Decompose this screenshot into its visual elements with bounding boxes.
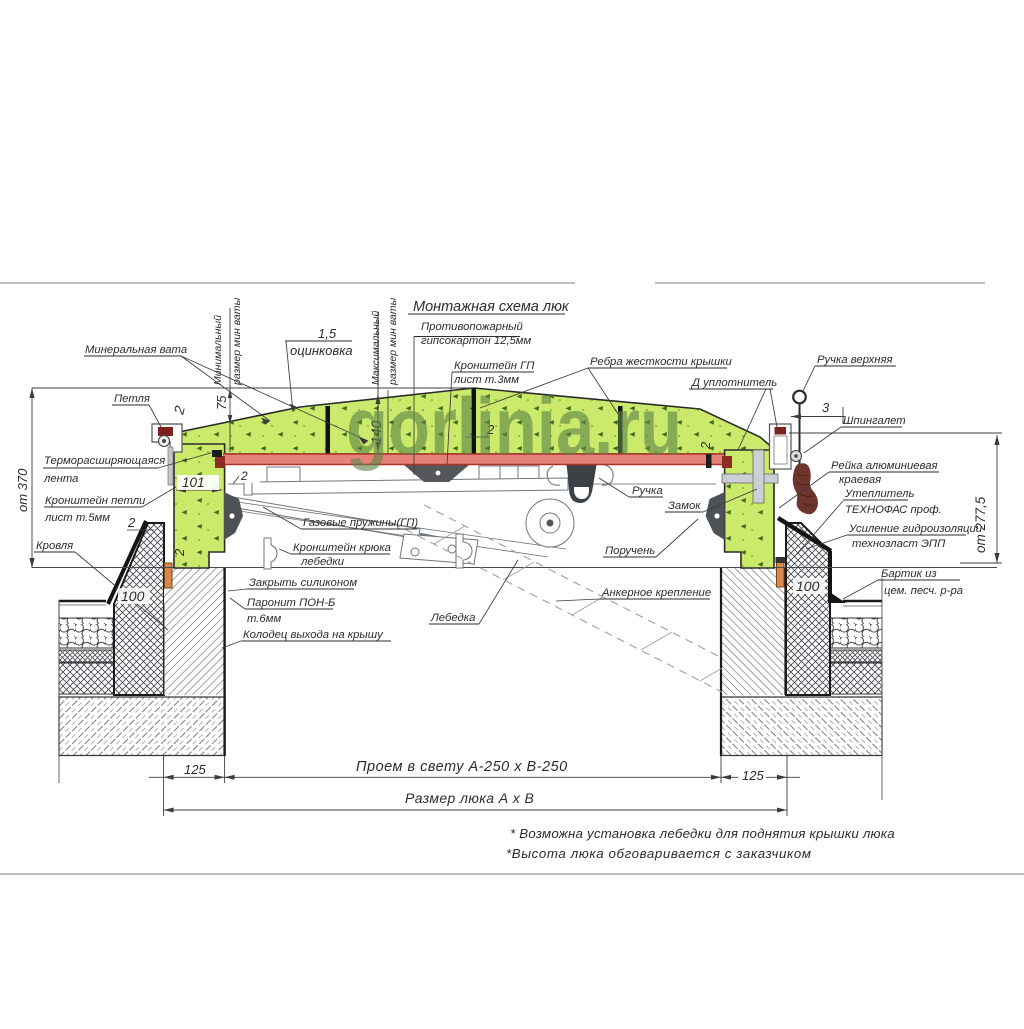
svg-text:Противопожарный: Противопожарный: [421, 321, 523, 333]
svg-text:т.6мм: т.6мм: [247, 613, 281, 625]
svg-text:2: 2: [240, 469, 248, 483]
svg-text:Паронит ПОН-Б: Паронит ПОН-Б: [247, 597, 335, 609]
svg-text:101: 101: [182, 475, 205, 490]
svg-text:Газовые пружины(ГП): Газовые пружины(ГП): [303, 517, 418, 529]
svg-text:Усиление гидроизоляции: Усиление гидроизоляции: [848, 523, 983, 535]
svg-text:Рейка алюминиевая: Рейка алюминиевая: [831, 460, 938, 472]
svg-text:гипсокартон 12,5мм: гипсокартон 12,5мм: [421, 335, 532, 347]
svg-text:цем. песч. р-ра: цем. песч. р-ра: [884, 585, 963, 597]
svg-text:Минимальный: Минимальный: [212, 315, 224, 385]
svg-text:3: 3: [822, 400, 830, 415]
svg-text:Размер люка А х В: Размер люка А х В: [405, 790, 534, 806]
svg-text:125: 125: [742, 768, 764, 783]
svg-text:Анкерное крепление: Анкерное крепление: [601, 587, 711, 599]
svg-text:Замок: Замок: [668, 500, 701, 512]
svg-text:Лебедка: Лебедка: [430, 612, 475, 624]
svg-text:2: 2: [127, 515, 136, 530]
svg-text:* Возможна установка лебедки д: * Возможна установка лебедки для подняти…: [510, 826, 895, 841]
svg-text:75: 75: [214, 395, 229, 410]
svg-text:Ручка верхняя: Ручка верхняя: [817, 354, 893, 366]
svg-text:Поручень: Поручень: [605, 545, 655, 557]
svg-text:от 277,5: от 277,5: [973, 496, 988, 553]
svg-text:лист т.5мм: лист т.5мм: [44, 512, 110, 524]
svg-text:оцинковка: оцинковка: [290, 343, 353, 358]
svg-text:Кронштейн ГП: Кронштейн ГП: [454, 360, 535, 372]
svg-text:2: 2: [172, 548, 187, 557]
svg-text:технозласт ЭПП: технозласт ЭПП: [852, 538, 946, 550]
svg-text:лебедки: лебедки: [300, 556, 345, 568]
svg-text:Максимальный: Максимальный: [370, 310, 382, 385]
svg-text:Д уплотнитель: Д уплотнитель: [690, 377, 777, 389]
svg-text:Терморасширяющаяся: Терморасширяющаяся: [44, 455, 165, 467]
svg-text:Шпингалет: Шпингалет: [843, 415, 906, 427]
svg-text:Ручка: Ручка: [632, 485, 663, 497]
svg-text:*Высота люка обговаривается с: *Высота люка обговаривается с заказчиком: [506, 846, 812, 861]
svg-text:Кронштейн петли: Кронштейн петли: [45, 495, 146, 507]
svg-text:Кровля: Кровля: [36, 540, 73, 552]
svg-text:gorlinia.ru: gorlinia.ru: [346, 382, 682, 472]
svg-text:размер мин ваты: размер мин ваты: [387, 297, 399, 386]
svg-text:Проем в свету А-250 х В-250: Проем в свету А-250 х В-250: [356, 759, 568, 775]
svg-text:Колодец выхода на крышу: Колодец выхода на крышу: [243, 629, 384, 641]
svg-text:Закрыть силиконом: Закрыть силиконом: [249, 577, 357, 589]
svg-text:Монтажная схема люк: Монтажная схема люк: [413, 299, 570, 315]
svg-text:1,5: 1,5: [318, 326, 337, 341]
svg-text:100: 100: [121, 588, 145, 604]
svg-text:от 370: от 370: [15, 468, 30, 512]
svg-text:краевая: краевая: [839, 474, 881, 486]
svg-text:ТЕХНОФАС проф.: ТЕХНОФАС проф.: [845, 504, 942, 516]
svg-text:Утеплитель: Утеплитель: [844, 488, 914, 500]
svg-text:125: 125: [184, 762, 206, 777]
svg-text:размер мин ваты: размер мин ваты: [231, 297, 243, 386]
svg-text:Кронштейн крюка: Кронштейн крюка: [293, 542, 391, 554]
svg-text:Петля: Петля: [114, 393, 150, 405]
svg-text:Бартик из: Бартик из: [881, 568, 937, 580]
svg-text:2: 2: [698, 441, 713, 450]
svg-text:Ребра жесткости крышки: Ребра жесткости крышки: [590, 356, 732, 368]
svg-text:лента: лента: [43, 473, 78, 485]
svg-text:100: 100: [796, 578, 820, 594]
svg-text:Минеральная вата: Минеральная вата: [85, 344, 187, 356]
